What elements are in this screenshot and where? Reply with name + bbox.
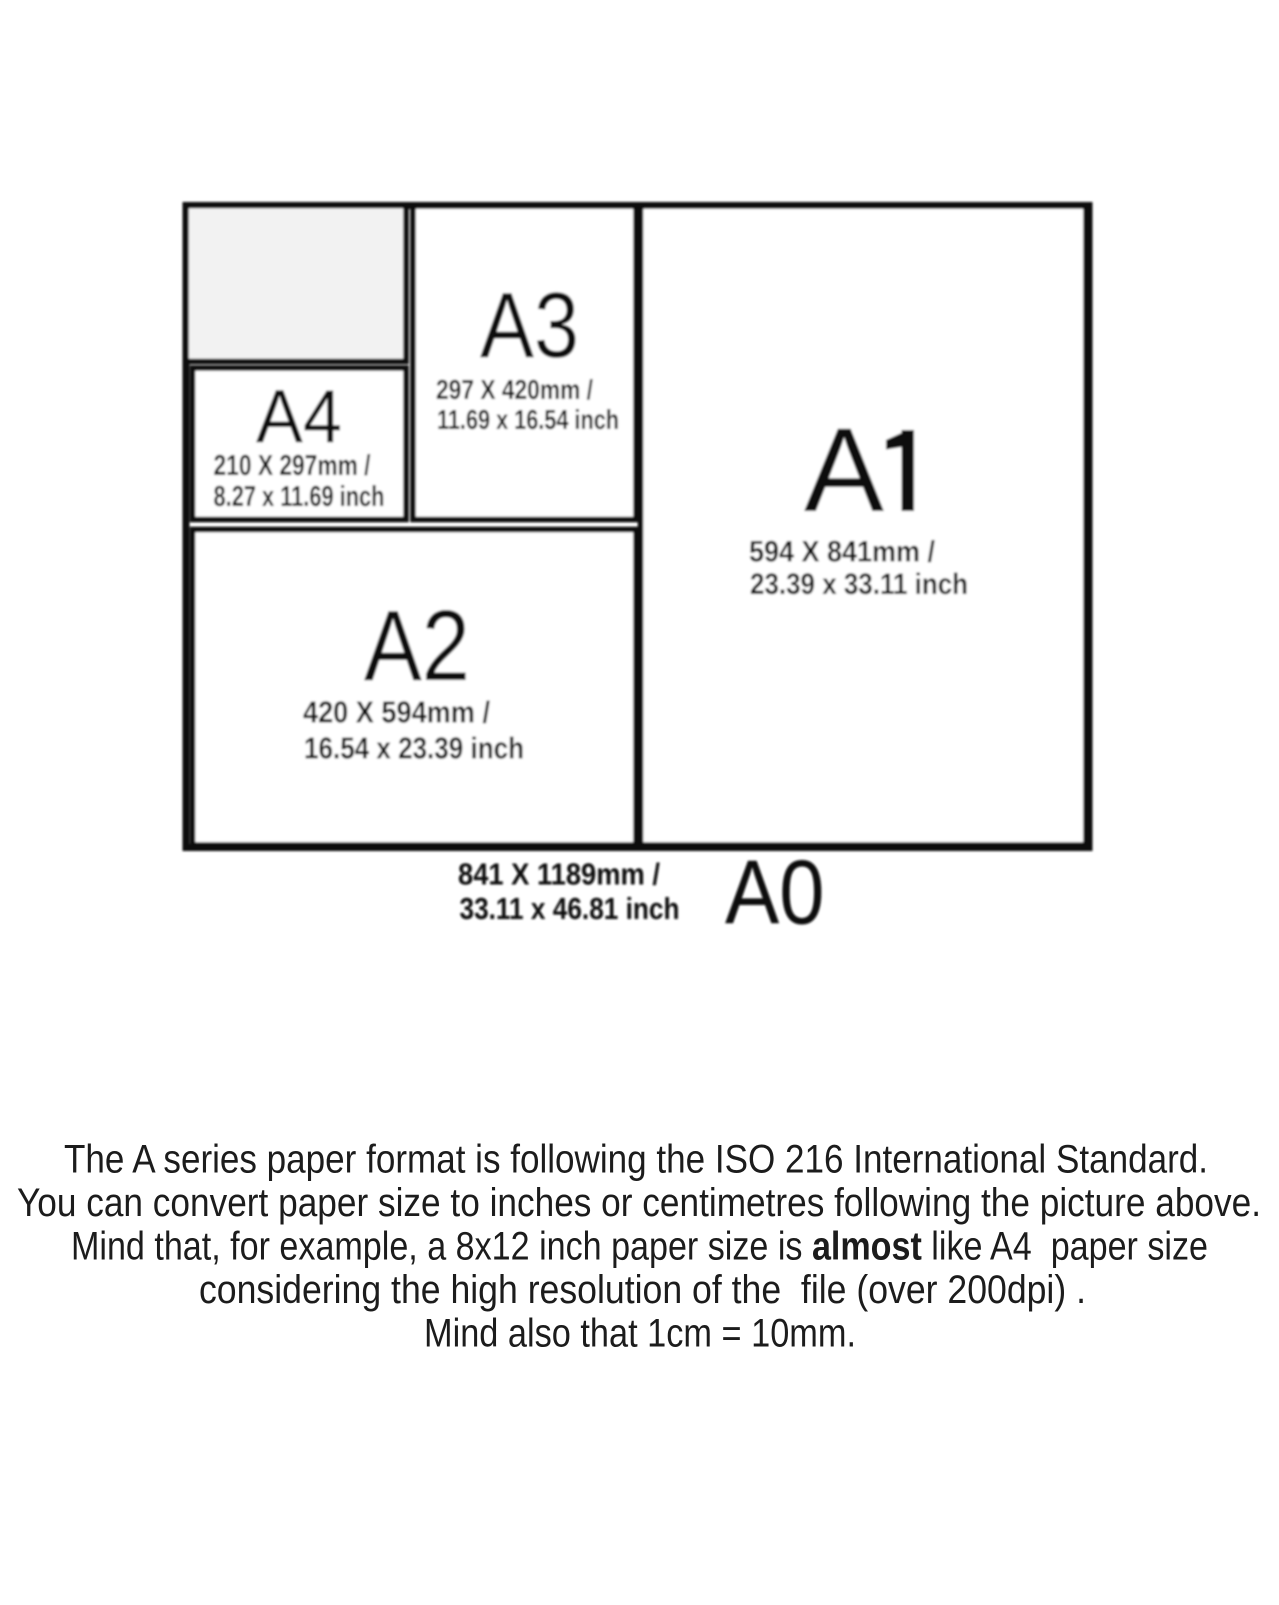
svg-text:A0: A0 [725, 843, 825, 944]
svg-text:420 X 594mm /: 420 X 594mm / [303, 696, 490, 730]
svg-text:considering the high resolutio: considering the high resolution of the f… [199, 1268, 1086, 1312]
svg-text:You can convert paper size to: You can convert paper size to inches or … [17, 1181, 1261, 1225]
svg-text:A2: A2 [364, 590, 470, 702]
svg-text:11.69 x 16.54 inch: 11.69 x 16.54 inch [437, 404, 619, 435]
svg-text:Mind that, for example, a 8x12: Mind that, for example, a 8x12 inch pape… [71, 1225, 1208, 1269]
svg-text:33.11 x 46.81 inch: 33.11 x 46.81 inch [460, 891, 680, 926]
svg-text:16.54 x 23.39 inch: 16.54 x 23.39 inch [304, 732, 524, 766]
svg-text:A3: A3 [480, 273, 579, 377]
svg-text:594 X 841mm /: 594 X 841mm / [749, 536, 935, 569]
svg-text:841 X 1189mm /: 841 X 1189mm / [458, 857, 660, 892]
svg-text:8.27 x 11.69 inch: 8.27 x 11.69 inch [214, 481, 385, 513]
svg-text:Mind also that 1cm = 10mm.: Mind also that 1cm = 10mm. [424, 1312, 856, 1356]
svg-text:A4: A4 [256, 374, 342, 458]
svg-text:The A series paper format is f: The A series paper format is following t… [64, 1138, 1208, 1182]
svg-text:23.39 x 33.11 inch: 23.39 x 33.11 inch [750, 568, 968, 601]
svg-text:210 X 297mm /: 210 X 297mm / [214, 450, 371, 482]
svg-text:A: A [804, 403, 884, 537]
svg-text:297 X 420mm /: 297 X 420mm / [436, 374, 593, 405]
